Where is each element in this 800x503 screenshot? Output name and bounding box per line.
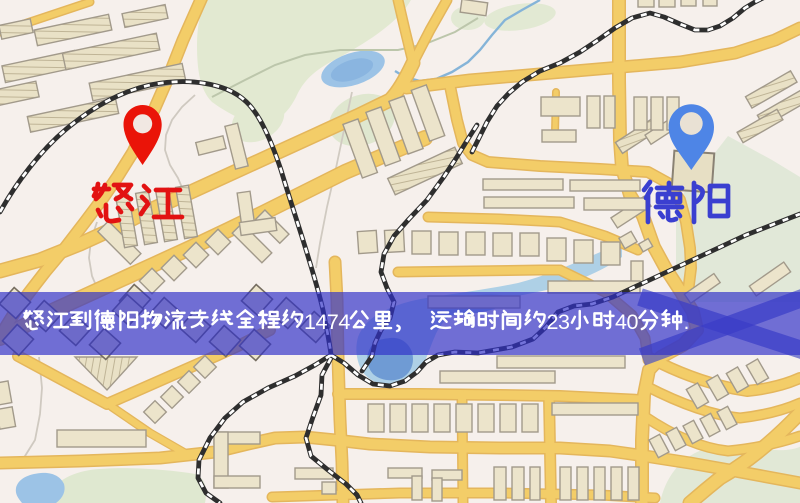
svg-text:1474: 1474 xyxy=(304,310,350,334)
svg-text:40: 40 xyxy=(615,310,638,334)
svg-text:.: . xyxy=(684,310,690,334)
svg-text:23: 23 xyxy=(547,310,570,334)
